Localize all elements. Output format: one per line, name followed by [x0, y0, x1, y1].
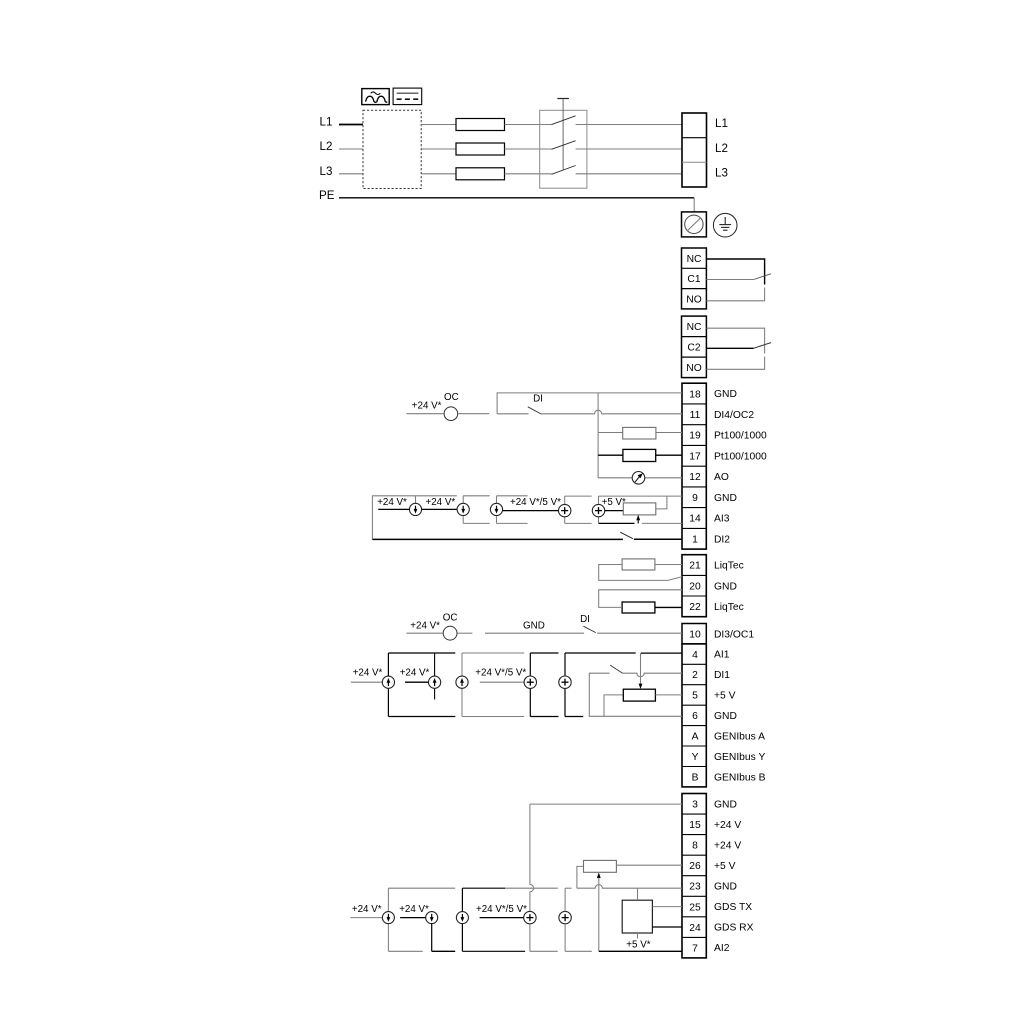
svg-text:20: 20 [689, 581, 701, 592]
svg-text:OC: OC [443, 612, 458, 623]
svg-text:C2: C2 [687, 343, 700, 354]
svg-text:AI3: AI3 [714, 514, 730, 525]
svg-text:NC: NC [687, 322, 702, 333]
svg-text:+5 V: +5 V [714, 861, 736, 872]
svg-text:+24 V*: +24 V* [400, 668, 430, 679]
svg-text:GDS RX: GDS RX [714, 923, 754, 934]
svg-text:GND: GND [523, 620, 545, 631]
svg-text:GND: GND [714, 581, 737, 592]
svg-text:+24 V*: +24 V* [426, 497, 456, 508]
svg-text:+5 V: +5 V [714, 691, 736, 702]
svg-text:+24 V*/5 V*: +24 V*/5 V* [475, 668, 526, 679]
svg-text:GDS TX: GDS TX [714, 902, 752, 913]
svg-text:NC: NC [687, 254, 702, 265]
svg-text:7: 7 [692, 943, 698, 954]
svg-text:22: 22 [689, 602, 701, 613]
svg-text:DI: DI [533, 394, 543, 405]
svg-text:DI3/OC1: DI3/OC1 [714, 629, 754, 640]
svg-text:GND: GND [714, 882, 737, 893]
svg-text:+24 V*: +24 V* [410, 621, 440, 632]
svg-text:AI1: AI1 [714, 650, 730, 661]
svg-text:GENIbus Y: GENIbus Y [714, 752, 765, 763]
svg-text:23: 23 [689, 882, 701, 893]
svg-text:DI: DI [580, 614, 590, 625]
svg-text:10: 10 [689, 629, 701, 640]
svg-text:AO: AO [714, 472, 729, 483]
svg-text:18: 18 [689, 389, 701, 400]
svg-text:GND: GND [714, 493, 737, 504]
svg-text:21: 21 [689, 561, 701, 572]
svg-text:A: A [692, 732, 699, 743]
svg-text:GND: GND [714, 389, 737, 400]
svg-text:C1: C1 [687, 274, 700, 285]
svg-text:+24 V*: +24 V* [412, 401, 442, 412]
svg-text:+24 V: +24 V [714, 820, 741, 831]
svg-text:+24 V*: +24 V* [399, 904, 429, 915]
svg-text:NO: NO [686, 295, 701, 306]
svg-text:DI2: DI2 [714, 534, 730, 545]
svg-text:GENIbus B: GENIbus B [714, 772, 766, 783]
svg-text:24: 24 [689, 923, 701, 934]
svg-text:B: B [692, 772, 699, 783]
svg-text:25: 25 [689, 902, 701, 913]
svg-text:GND: GND [714, 711, 737, 722]
svg-text:3: 3 [692, 800, 698, 811]
svg-text:+24 V*/5 V*: +24 V*/5 V* [476, 904, 527, 915]
svg-text:2: 2 [692, 670, 698, 681]
svg-text:L3: L3 [715, 167, 728, 180]
svg-text:LiqTec: LiqTec [714, 561, 744, 572]
svg-text:+24 V*: +24 V* [353, 668, 383, 679]
svg-text:12: 12 [689, 472, 701, 483]
svg-text:8: 8 [692, 841, 698, 852]
svg-text:+24 V*: +24 V* [377, 497, 407, 508]
svg-text:Y: Y [692, 752, 699, 763]
svg-text:L1: L1 [715, 117, 728, 130]
svg-text:Pt100/1000: Pt100/1000 [714, 451, 767, 462]
svg-text:+24 V*/5 V*: +24 V*/5 V* [510, 497, 561, 508]
svg-text:NO: NO [686, 363, 701, 374]
svg-text:26: 26 [689, 861, 701, 872]
svg-text:L3: L3 [320, 165, 333, 178]
svg-text:9: 9 [692, 493, 698, 504]
svg-text:AI2: AI2 [714, 943, 730, 954]
svg-text:5: 5 [692, 691, 698, 702]
svg-text:15: 15 [689, 820, 701, 831]
svg-text:GENIbus A: GENIbus A [714, 731, 765, 742]
svg-text:OC: OC [444, 392, 459, 403]
svg-text:LiqTec: LiqTec [714, 602, 744, 613]
svg-text:+24 V*: +24 V* [352, 904, 382, 915]
svg-text:6: 6 [692, 711, 698, 722]
svg-text:4: 4 [692, 650, 698, 661]
svg-text:1: 1 [692, 534, 698, 545]
svg-text:17: 17 [689, 452, 701, 463]
svg-text:PE: PE [319, 189, 335, 202]
svg-text:19: 19 [689, 431, 701, 442]
svg-text:L2: L2 [715, 142, 728, 155]
svg-text:+5 V*: +5 V* [626, 940, 650, 951]
svg-text:GND: GND [714, 799, 737, 810]
svg-text:DI4/OC2: DI4/OC2 [714, 410, 754, 421]
svg-text:DI1: DI1 [714, 670, 730, 681]
svg-text:+5 V*: +5 V* [602, 497, 626, 508]
svg-text:L1: L1 [320, 115, 333, 128]
svg-text:11: 11 [690, 410, 701, 421]
svg-text:14: 14 [689, 514, 701, 525]
svg-text:+24 V: +24 V [714, 841, 741, 852]
svg-text:Pt100/1000: Pt100/1000 [714, 431, 767, 442]
svg-text:L2: L2 [320, 140, 333, 153]
